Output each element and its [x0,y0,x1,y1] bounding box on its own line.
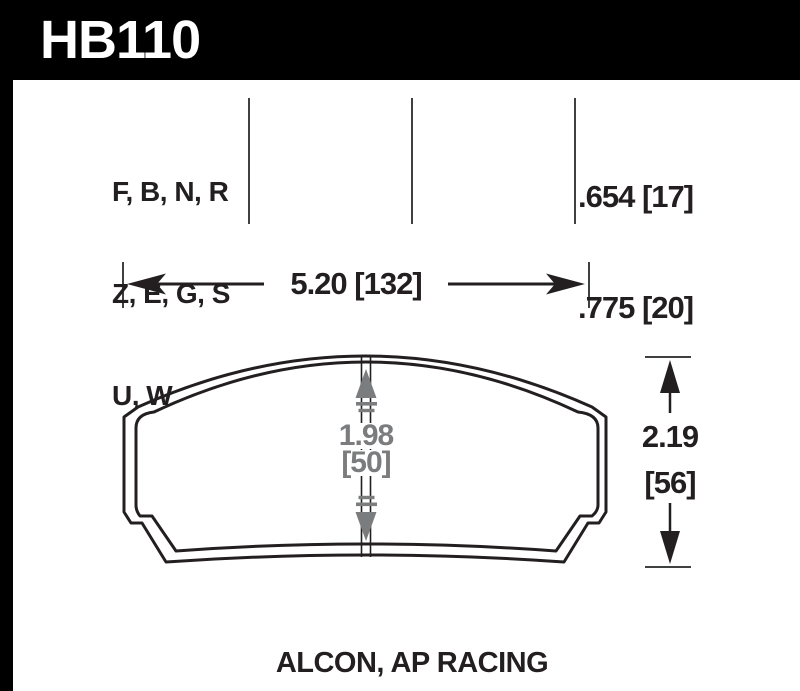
height-dim-down-arrowhead [660,531,680,564]
pad-height-up-feather-1 [356,402,377,406]
compound-row-3: U, W [112,379,230,413]
thickness-value-1: .654 [17] [578,178,693,215]
thickness-value-2: .775 [20] [578,289,693,326]
compound-codes: F, B, N, R Z, E, G, S U, W [112,107,230,481]
overall-height-label-in: 2.19 [620,422,720,452]
overall-height-label-mm: [56] [620,468,720,498]
pad-height-down-feather-2 [359,496,375,499]
brake-pad-spec-sheet: HB110 F, [0,0,800,691]
pad-height-label-mm: [50] [316,450,416,476]
compound-row-1: F, B, N, R [112,175,230,209]
applications-label: ALCON, AP RACING [212,648,612,678]
pad-height-up-feather-2 [359,409,375,412]
compound-row-2: Z, E, G, S [112,277,230,311]
pad-height-down-feather-1 [356,503,377,507]
pad-thickness-values: .654 [17] .775 [20] [578,104,693,400]
overall-width-label: 5.20 [132] [256,266,456,302]
